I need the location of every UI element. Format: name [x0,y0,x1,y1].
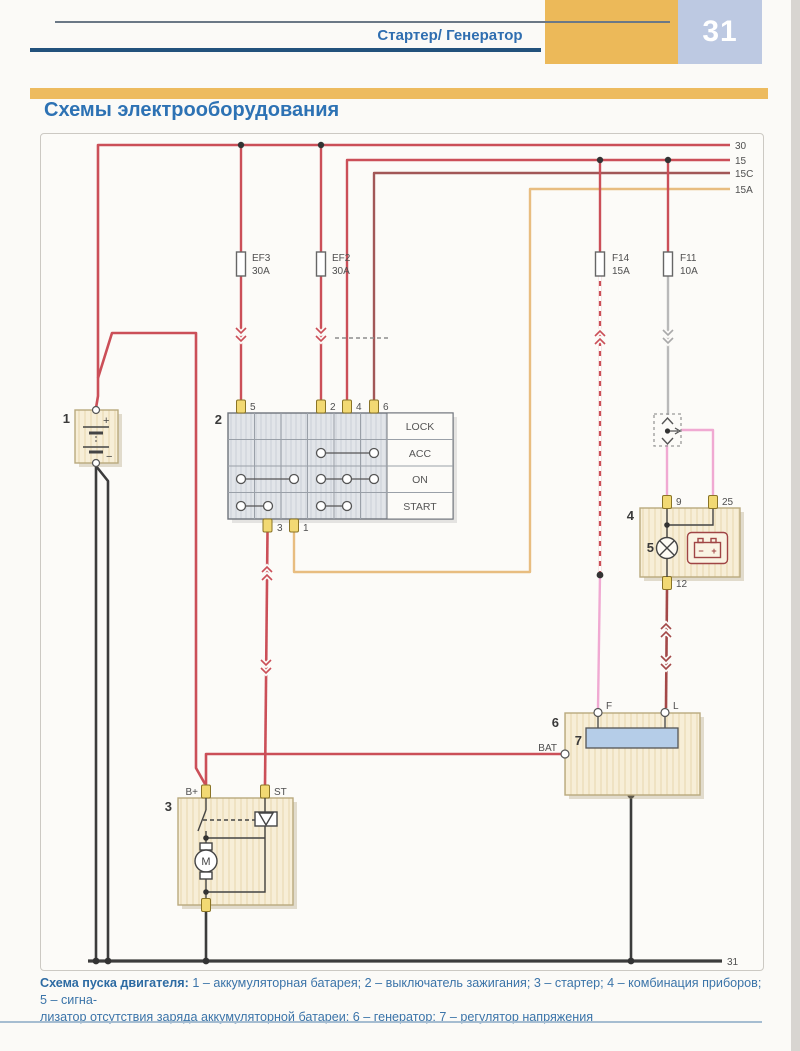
wire-bus-30 [96,145,730,408]
chevron-f11 [663,330,673,343]
fuse-f14: F14 15A [596,252,631,277]
battery-plus-sign: + [103,415,109,427]
title-orange-band [30,88,768,99]
battery-number: 1 [63,411,70,426]
chevron-f14 [595,331,605,344]
page-number: 31 [702,15,737,49]
position-acc: ACC [409,448,432,460]
wire-pink-to-25 [681,430,713,496]
battery-plus-terminal [93,407,100,414]
fuse-ef2-rating: 30A [332,266,350,277]
fuse-f14-name: F14 [612,253,630,264]
wire-12-to-l [666,590,667,708]
fuse-f11: F11 10A [664,252,699,277]
fuse-ef2: EF2 30A [317,252,351,277]
position-lock: LOCK [406,421,435,433]
chevron-st-down [261,660,271,673]
page-title: Схемы электрооборудования [44,99,339,122]
header-rule-thick [30,48,541,52]
page-edge-shadow [791,0,800,1051]
component-generator: F L BAT 6 7 [538,701,704,799]
ignition-number: 2 [215,412,222,427]
terminal-3-label: 3 [277,523,283,534]
manual-page: 31 Стартер/ Генератор Схемы электрообору… [0,0,800,1051]
starter-number: 3 [165,799,172,814]
fuse-f14-rating: 15A [612,266,630,277]
wire-battery-to-starter [98,333,205,784]
terminal-l [661,709,669,717]
terminal-5-label: 5 [250,402,256,413]
bus-15a-label: 15A [735,185,753,196]
wiring-diagram: EF3 30A EF2 30A F14 15A F11 10A [40,133,762,969]
bus-15c-label: 15C [735,169,753,180]
terminal-bat [561,750,569,758]
cluster-number: 4 [627,508,635,523]
lamp-number: 5 [647,540,654,555]
battery-warning-icon [688,533,728,564]
fuse-ef3-name: EF3 [252,253,271,264]
component-starter: M B+ ST 3 [165,785,297,912]
header-section-title: Стартер/ Генератор [330,27,570,44]
wire-ground-battery [96,466,108,961]
dashed-connector-box [654,414,681,446]
battery-minus-sign: − [106,451,112,463]
caption-line2: лизатор отсутствия заряда аккумуляторной… [40,1009,762,1026]
regulator-number: 7 [575,733,582,748]
st-label: ST [274,787,287,798]
terminal-12-label: 12 [676,579,688,590]
batt-icon-plus: + [711,546,716,556]
figure-caption: Схема пуска двигателя: 1 – аккумуляторна… [40,975,762,1026]
component-cluster: − + 9 25 12 4 5 [627,496,744,591]
motor-label: M [201,856,210,868]
generator-number: 6 [552,715,559,730]
terminal-25-label: 25 [722,497,734,508]
l-label: L [673,701,679,712]
bus-30-label: 30 [735,141,747,152]
fuse-ef2-name: EF2 [332,253,351,264]
terminal-6-label: 6 [383,402,389,413]
terminal-f [594,709,602,717]
page-number-box: 31 [678,0,762,64]
wire-starter-to-generator-bat [206,754,561,785]
fuse-f11-rating: 10A [680,266,698,277]
chevron-st-up [262,567,272,580]
position-start: START [403,501,437,513]
terminal-9-label: 9 [676,497,682,508]
caption-lead: Схема пуска двигателя: [40,976,189,990]
wire-pink-to-f [598,575,600,708]
position-on: ON [412,474,428,486]
bat-label: BAT [538,743,557,754]
terminal-1-label: 1 [303,523,309,534]
bottom-rule [0,1021,762,1023]
terminal-4-label: 4 [356,402,362,413]
chevron-l-down [661,656,671,669]
chevron-ef3 [236,328,246,341]
fuse-f11-name: F11 [680,253,697,264]
terminal-2-label: 2 [330,402,336,413]
batt-icon-minus: − [698,546,703,556]
chevron-ef2 [316,328,326,341]
header-rule-thin [55,21,670,23]
battery-minus-terminal [93,460,100,467]
chevron-l-up [661,624,671,637]
bplus-label: B+ [185,787,198,798]
bus-15-label: 15 [735,156,747,167]
component-ignition-switch: LOCK ACC ON START 5 2 4 6 3 1 2 [215,400,457,534]
component-battery: + − 1 [63,407,122,468]
wire-bus-15c [374,173,730,400]
bus-31-label: 31 [727,957,739,968]
wire-bus-15 [347,160,730,400]
fuse-ef3-rating: 30A [252,266,270,277]
fuse-ef3: EF3 30A [237,252,271,277]
voltage-regulator [586,728,678,748]
f-label: F [606,701,612,712]
